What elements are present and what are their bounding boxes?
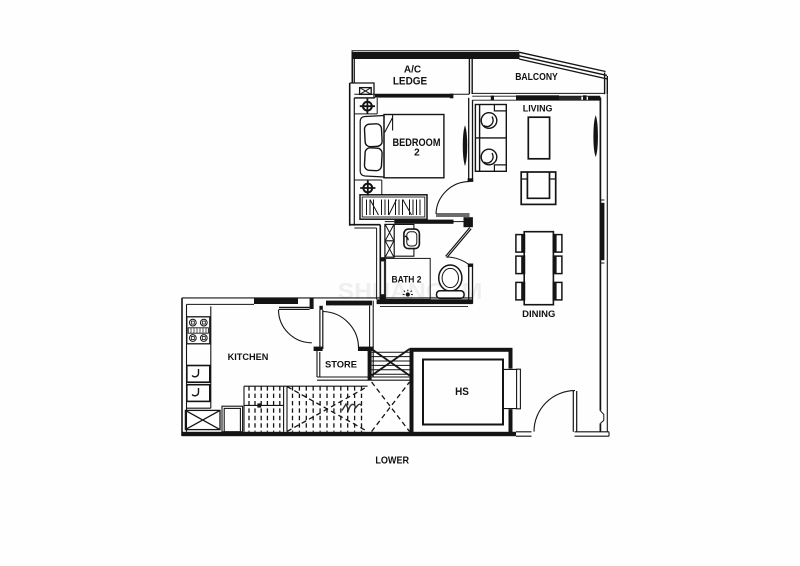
svg-text:BALCONY: BALCONY bbox=[515, 71, 558, 82]
svg-text:DINING: DINING bbox=[522, 309, 555, 320]
svg-text:LOWER: LOWER bbox=[375, 455, 409, 467]
svg-text:HS: HS bbox=[455, 387, 469, 398]
svg-text:KITCHEN: KITCHEN bbox=[228, 352, 269, 362]
svg-text:BATH 2: BATH 2 bbox=[392, 274, 422, 284]
svg-text:STORE: STORE bbox=[325, 358, 357, 369]
svg-text:LIVING: LIVING bbox=[523, 103, 553, 113]
svg-text:A/C: A/C bbox=[404, 65, 421, 76]
svg-text:LEDGE: LEDGE bbox=[393, 75, 427, 88]
svg-text:2: 2 bbox=[414, 148, 420, 159]
